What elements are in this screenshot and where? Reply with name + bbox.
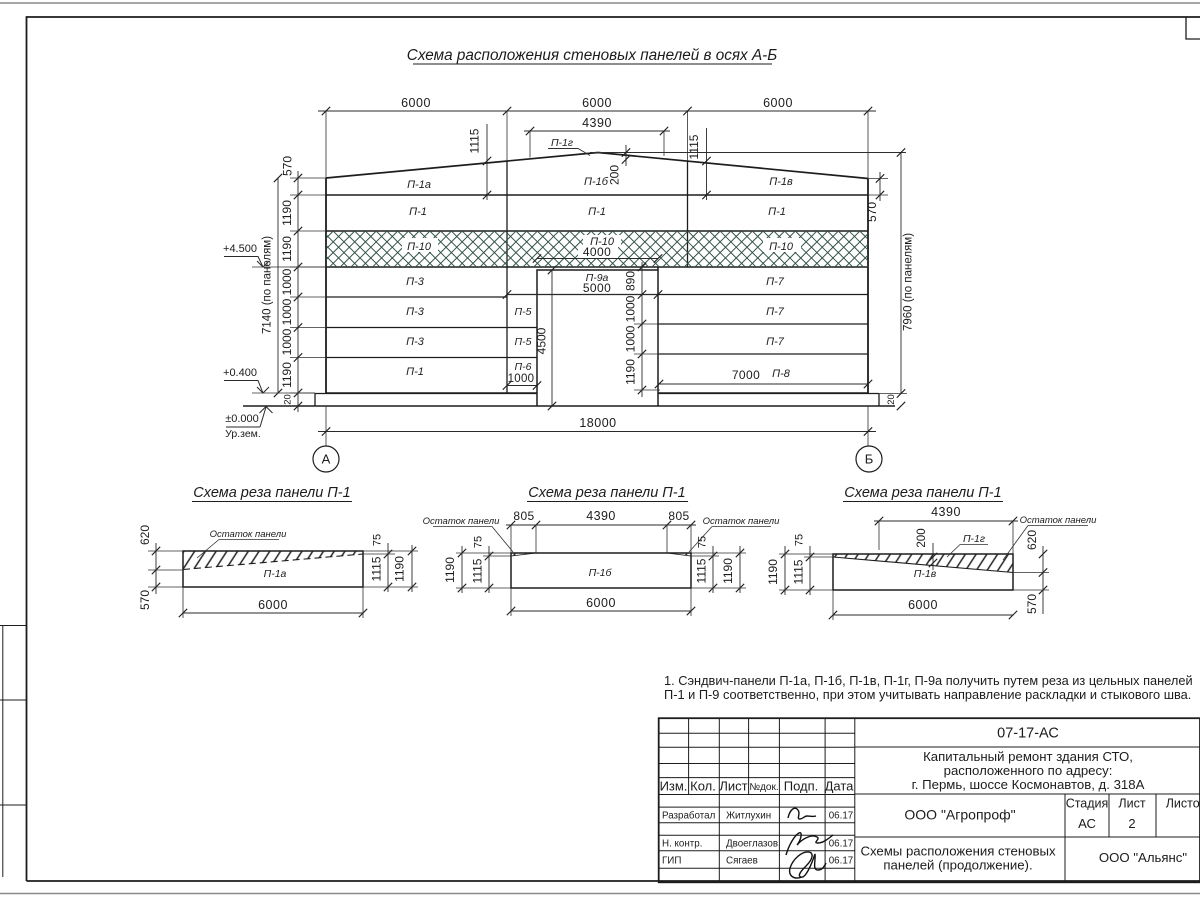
svg-text:П-7: П-7 — [766, 276, 785, 288]
svg-text:г. Пермь, шоссе Космонавтов, д: г. Пермь, шоссе Космонавтов, д. 318А — [912, 777, 1145, 792]
svg-text:1190: 1190 — [766, 559, 780, 585]
svg-text:805: 805 — [668, 509, 689, 523]
svg-text:7140 (по панелям): 7140 (по панелям) — [262, 236, 274, 334]
svg-text:6000: 6000 — [908, 598, 938, 612]
svg-text:Ур.зем.: Ур.зем. — [225, 428, 261, 440]
svg-text:панелей (продолжение).: панелей (продолжение). — [883, 858, 1032, 873]
svg-text:П-5: П-5 — [515, 336, 532, 348]
svg-text:1000: 1000 — [280, 328, 294, 355]
svg-text:±0.000: ±0.000 — [225, 413, 259, 425]
svg-text:6000: 6000 — [586, 596, 616, 610]
svg-text:№док.: №док. — [749, 782, 778, 793]
svg-text:ГИП: ГИП — [662, 856, 681, 867]
svg-text:4500: 4500 — [535, 327, 549, 354]
svg-text:Остаток панели: Остаток панели — [703, 516, 781, 527]
svg-text:П-1 и П-9 соответственно, при: П-1 и П-9 соответственно, при этом учиты… — [664, 687, 1191, 702]
svg-text:П-1г: П-1г — [963, 533, 985, 545]
svg-text:Б: Б — [865, 452, 874, 467]
svg-text:75: 75 — [372, 534, 384, 546]
svg-text:П-3: П-3 — [406, 306, 425, 318]
svg-text:570: 570 — [865, 202, 879, 222]
svg-text:П-10: П-10 — [407, 241, 432, 253]
svg-text:1000: 1000 — [508, 373, 535, 385]
svg-text:1115: 1115 — [792, 559, 806, 584]
svg-text:06.17: 06.17 — [829, 856, 854, 867]
svg-text:200: 200 — [916, 528, 928, 547]
svg-text:4390: 4390 — [931, 505, 961, 519]
svg-text:Изм.: Изм. — [660, 779, 688, 794]
svg-text:1115: 1115 — [695, 558, 709, 583]
svg-text:П-1в: П-1в — [769, 176, 793, 188]
svg-text:Остаток панели: Остаток панели — [210, 529, 288, 540]
svg-text:Двоеглазов: Двоеглазов — [726, 839, 778, 850]
svg-text:6000: 6000 — [258, 598, 288, 612]
svg-text:1. Сэндвич-панели П-1а, П-1б,: 1. Сэндвич-панели П-1а, П-1б, П-1в, П-1г… — [664, 673, 1193, 688]
svg-text:Листов: Листов — [1166, 797, 1200, 811]
svg-text:18000: 18000 — [579, 416, 616, 430]
svg-text:Стадия: Стадия — [1066, 797, 1109, 811]
svg-text:4000: 4000 — [583, 245, 611, 259]
svg-text:ООО "Альянс": ООО "Альянс" — [1099, 850, 1187, 865]
svg-text:75: 75 — [697, 536, 709, 548]
svg-text:1000: 1000 — [280, 268, 294, 295]
svg-text:75: 75 — [794, 534, 806, 546]
svg-text:1190: 1190 — [280, 236, 294, 262]
svg-text:П-1: П-1 — [588, 206, 606, 218]
svg-text:П-5: П-5 — [515, 306, 532, 318]
svg-text:890: 890 — [624, 271, 638, 291]
svg-text:06.17: 06.17 — [829, 839, 854, 850]
svg-text:Остаток панели: Остаток панели — [423, 516, 501, 527]
svg-text:А: А — [322, 452, 331, 467]
svg-text:Лист: Лист — [1118, 797, 1145, 811]
svg-text:П-1: П-1 — [768, 206, 786, 218]
svg-text:2: 2 — [1128, 816, 1135, 831]
svg-text:Схема расположения стеновых па: Схема расположения стеновых панелей в ос… — [407, 47, 777, 64]
svg-text:7000: 7000 — [732, 368, 760, 382]
svg-text:1190: 1190 — [443, 557, 457, 583]
svg-text:6000: 6000 — [582, 96, 612, 110]
svg-text:П-10: П-10 — [769, 241, 794, 253]
svg-text:1190: 1190 — [624, 359, 638, 385]
svg-text:+4.500: +4.500 — [223, 243, 257, 255]
svg-text:1190: 1190 — [393, 556, 407, 582]
svg-text:5000: 5000 — [583, 281, 611, 295]
svg-text:Подп.: Подп. — [784, 779, 819, 794]
svg-text:Житлухин: Житлухин — [726, 811, 771, 822]
svg-text:570: 570 — [1025, 594, 1039, 614]
svg-text:расположенного по адресу:: расположенного по адресу: — [944, 763, 1113, 778]
svg-text:П-1а: П-1а — [407, 179, 431, 191]
svg-text:20: 20 — [283, 394, 294, 405]
svg-text:П-3: П-3 — [406, 336, 425, 348]
svg-text:Разработал: Разработал — [662, 811, 716, 822]
svg-text:П-1: П-1 — [406, 366, 424, 378]
svg-text:Схема реза панели П-1: Схема реза панели П-1 — [193, 485, 350, 501]
svg-text:07-17-АС: 07-17-АС — [997, 726, 1059, 742]
svg-text:6000: 6000 — [401, 96, 431, 110]
svg-text:6000: 6000 — [763, 96, 793, 110]
svg-text:7960 (по панелям): 7960 (по панелям) — [903, 233, 915, 331]
svg-text:570: 570 — [281, 156, 295, 176]
svg-text:620: 620 — [1025, 530, 1039, 550]
svg-text:Сягаев: Сягаев — [726, 856, 758, 867]
svg-text:П-3: П-3 — [406, 276, 425, 288]
svg-text:Схема реза панели П-1: Схема реза панели П-1 — [844, 485, 1001, 501]
svg-text:Лист: Лист — [719, 779, 747, 794]
svg-text:1190: 1190 — [721, 558, 735, 584]
svg-text:1115: 1115 — [687, 134, 701, 159]
svg-text:1190: 1190 — [280, 200, 294, 226]
svg-text:П-7: П-7 — [766, 306, 785, 318]
svg-text:Н. контр.: Н. контр. — [662, 839, 702, 850]
svg-text:П-1: П-1 — [409, 206, 427, 218]
svg-text:Кол.: Кол. — [690, 779, 716, 794]
svg-text:+0.400: +0.400 — [223, 367, 257, 379]
svg-text:1115: 1115 — [370, 556, 384, 581]
svg-text:1000: 1000 — [624, 325, 638, 352]
svg-text:Схемы расположения стеновых: Схемы расположения стеновых — [860, 844, 1056, 859]
svg-text:Дата: Дата — [825, 779, 855, 794]
svg-text:Схема реза панели П-1: Схема реза панели П-1 — [528, 485, 685, 501]
svg-text:570: 570 — [138, 590, 152, 610]
svg-text:20: 20 — [886, 394, 897, 405]
svg-text:1190: 1190 — [280, 362, 294, 388]
svg-text:П-1а: П-1а — [264, 568, 287, 580]
svg-text:4390: 4390 — [586, 509, 615, 523]
svg-text:АС: АС — [1078, 816, 1096, 831]
svg-text:П-8: П-8 — [772, 368, 791, 380]
svg-text:П-1б: П-1б — [589, 567, 613, 579]
svg-text:ООО "Агропроф": ООО "Агропроф" — [904, 807, 1015, 823]
svg-text:4390: 4390 — [582, 116, 612, 130]
svg-text:Остаток панели: Остаток панели — [1020, 515, 1098, 526]
svg-text:Капитальный ремонт здания СТО,: Капитальный ремонт здания СТО, — [923, 749, 1133, 764]
svg-text:П-1г: П-1г — [551, 137, 573, 149]
svg-text:805: 805 — [513, 509, 534, 523]
svg-text:620: 620 — [138, 525, 152, 545]
svg-text:200: 200 — [608, 165, 622, 185]
svg-text:06.17: 06.17 — [829, 811, 854, 822]
svg-text:1115: 1115 — [468, 128, 482, 153]
svg-text:75: 75 — [473, 536, 485, 548]
svg-text:П-1б: П-1б — [584, 176, 609, 188]
svg-text:П-6: П-6 — [515, 361, 532, 373]
svg-text:1000: 1000 — [280, 298, 294, 325]
svg-text:1000: 1000 — [624, 295, 638, 322]
svg-text:1115: 1115 — [471, 558, 485, 583]
svg-text:П-7: П-7 — [766, 336, 785, 348]
